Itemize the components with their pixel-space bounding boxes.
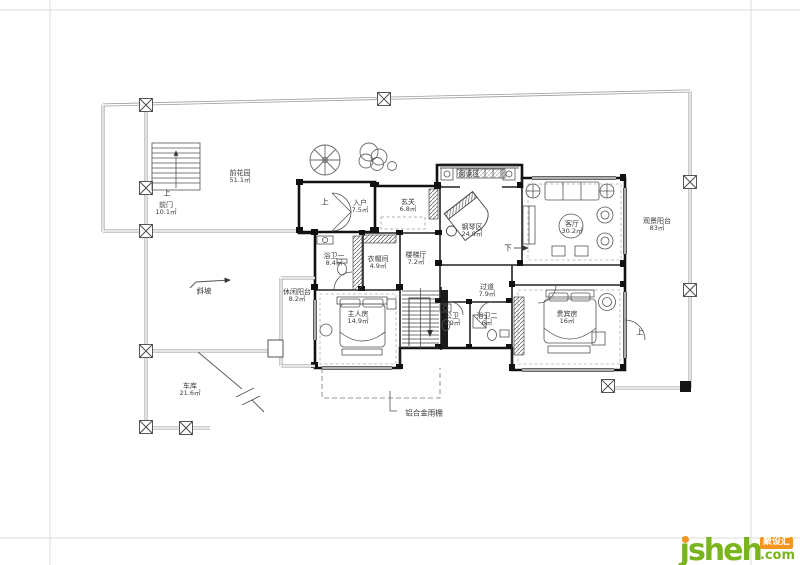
stool: [320, 324, 332, 336]
floor-plan-drawing: [0, 0, 800, 565]
label-bath-1: 浴卫一8.4㎡: [324, 252, 345, 268]
cloakroom-wardrobe: [353, 236, 362, 290]
house-exterior-walls: [299, 165, 625, 370]
driveway-slope: [190, 280, 264, 412]
label-public-bath: 公卫4.9㎡: [444, 312, 461, 328]
label-stair-hall: 楼梯厅7.2㎡: [406, 251, 427, 267]
brand-dot-icon: [682, 536, 689, 543]
label-living-room: 客厅30.2㎡: [562, 220, 583, 236]
label-cloakroom: 衣帽间4.9㎡: [368, 255, 389, 271]
label-front-garden: 前花园51.1㎡: [230, 169, 251, 185]
label-piano-area: 钢琴区24.9㎡: [462, 223, 483, 239]
foyer-cabinet: [429, 189, 438, 219]
label-front-door: 前门10.1㎡: [156, 201, 177, 217]
label-master-bedroom: 主人房14.9㎡: [348, 310, 369, 326]
bed-headboard: [546, 290, 594, 297]
down-mark-piano: 下: [504, 243, 512, 254]
brand-tld: .com: [760, 549, 795, 562]
label-entry: 入户7.5㎡: [352, 199, 369, 215]
foyer-rug: [381, 217, 425, 229]
label-garage: 车库21.6㎡: [180, 382, 201, 398]
label-view-balcony: 观景阳台83㎡: [643, 217, 671, 233]
side-table: [592, 332, 605, 345]
watermark-logo: jsheh 聚设汇 .com: [680, 537, 795, 562]
brand-text: jsheh: [680, 539, 761, 562]
bed-bench: [548, 346, 590, 353]
lounge-chair: [599, 294, 616, 311]
label-leisure-balcony: 休闲阳台8.2㎡: [283, 288, 311, 304]
label-reading-area: 阅读区: [459, 170, 480, 178]
label-vip-room: 贵宾房16㎡: [557, 310, 578, 326]
label-corridor: 过道7.9㎡: [479, 283, 496, 299]
armchair: [597, 233, 613, 249]
sofa: [545, 182, 599, 200]
up-mark-balcony: 上: [636, 327, 644, 338]
built-in-cabinets: [353, 189, 524, 355]
label-foyer: 玄关6.8㎡: [400, 198, 417, 214]
main-staircase: [402, 288, 439, 349]
site-boundary-fence: [103, 91, 690, 428]
armchair: [597, 207, 613, 223]
label-bath-2: 浴卫二6㎡: [477, 312, 498, 328]
bed-bench: [342, 349, 382, 355]
up-mark-front-stairs: 上: [163, 188, 171, 199]
label-slope: 斜坡: [197, 286, 212, 297]
canopy-leader-line: [390, 391, 397, 411]
tree-icons: [310, 143, 397, 175]
up-mark-entry: 上: [321, 197, 329, 208]
master-bedroom-furniture: [320, 294, 396, 364]
bed-headboard: [337, 297, 387, 304]
vip-wardrobe: [514, 297, 524, 355]
label-canopy: 铝合金雨棚: [405, 408, 443, 419]
canopy-outline: [322, 368, 440, 398]
front-stairs: [152, 143, 200, 190]
floor-plan-sheet: 前花园51.1㎡ 上 前门10.1㎡ 上 入户7.5㎡ 玄关6.8㎡ 阅读区 钢…: [0, 0, 800, 565]
nightstand: [387, 299, 396, 309]
